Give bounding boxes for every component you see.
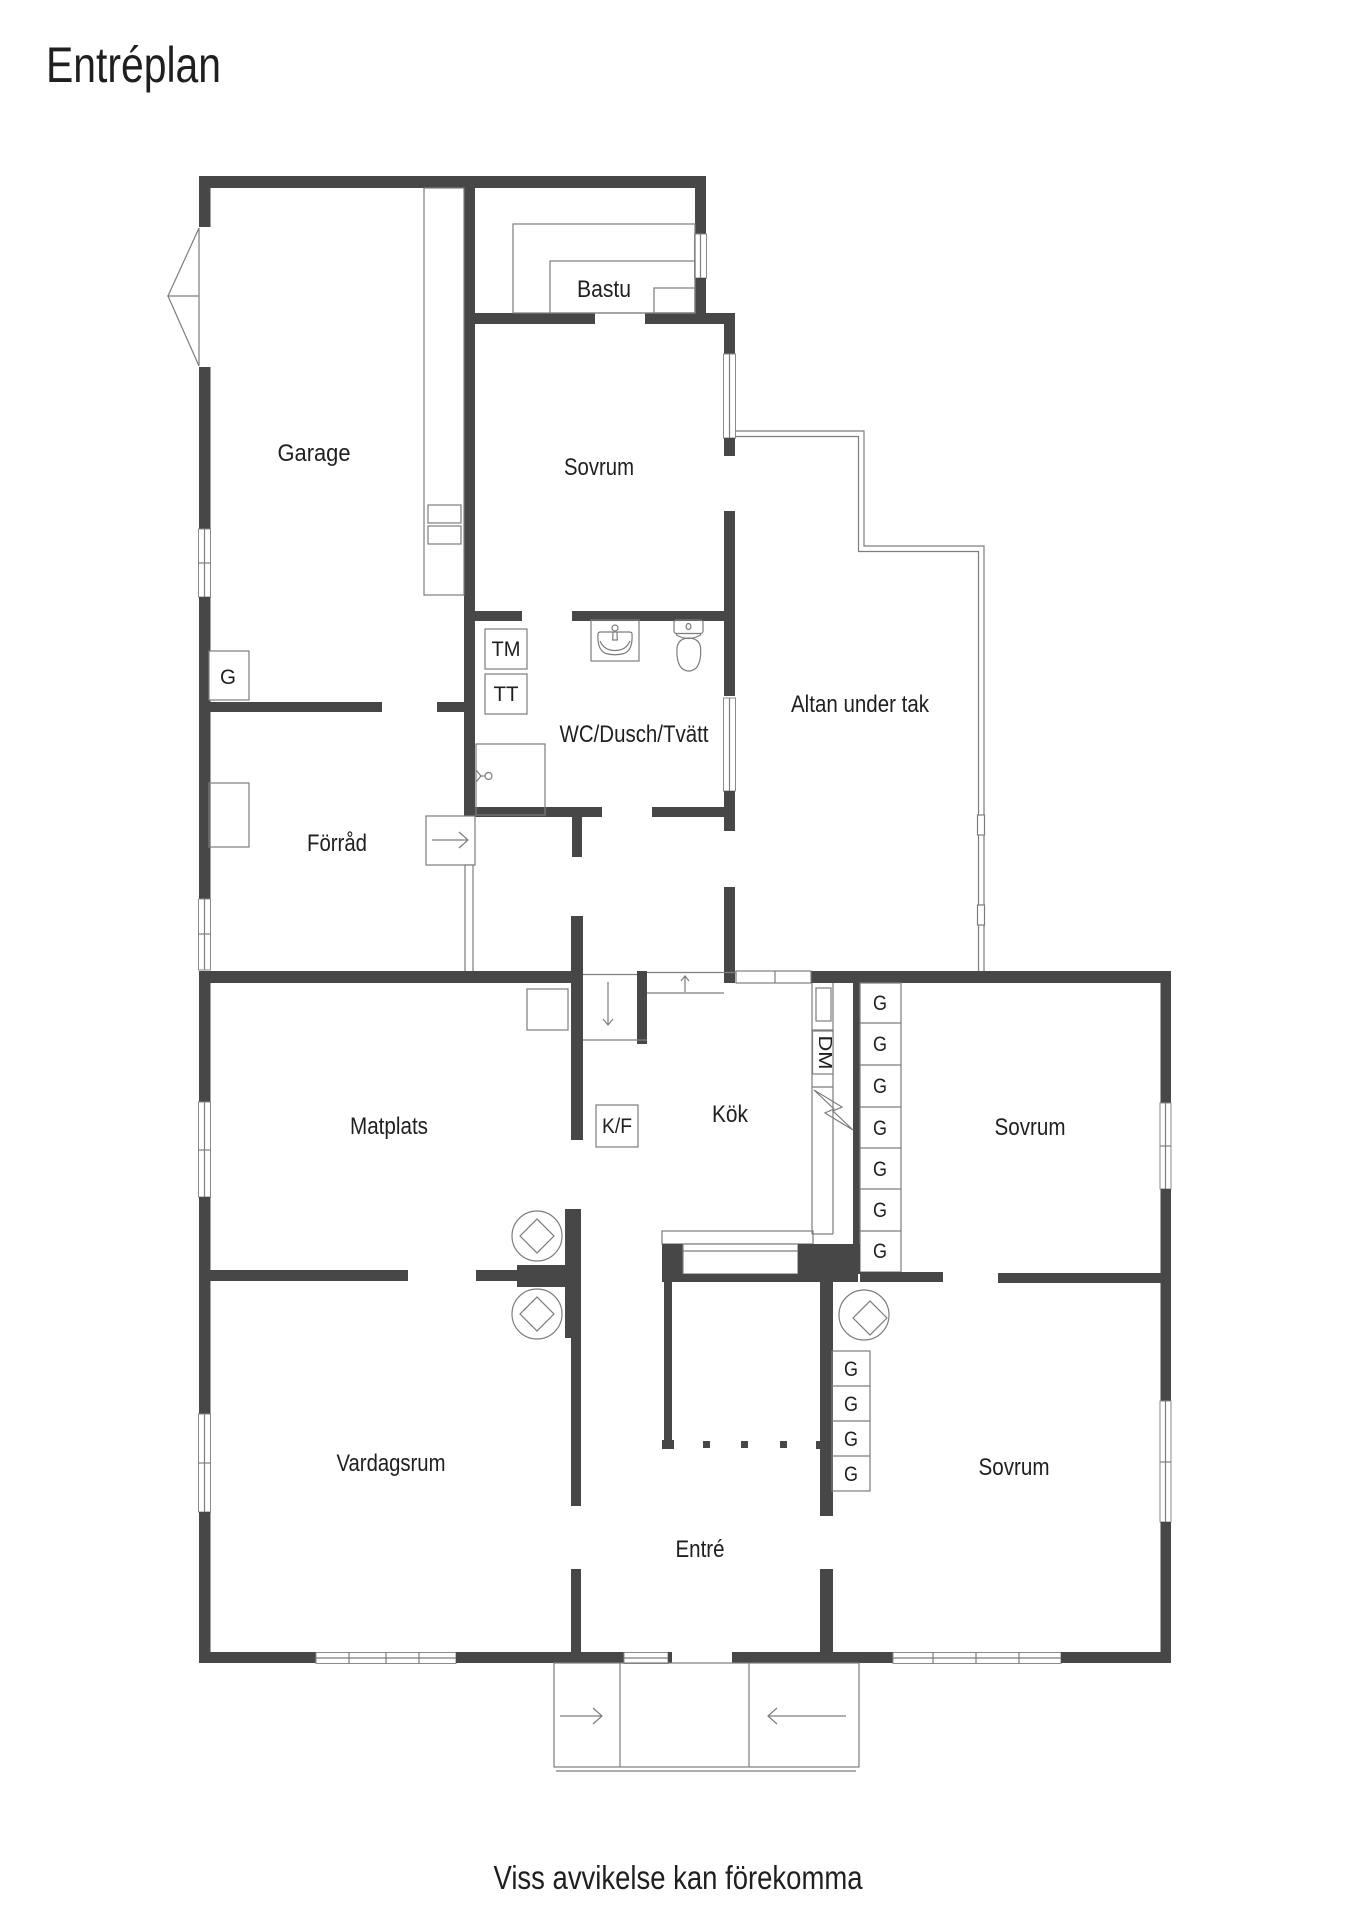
svg-text:WC/Dusch/Tvätt: WC/Dusch/Tvätt [560,721,709,748]
svg-text:TM: TM [492,638,521,661]
svg-text:Vardagsrum: Vardagsrum [337,1450,446,1477]
svg-text:G: G [220,666,236,689]
svg-text:G: G [873,992,887,1015]
svg-text:Sovrum: Sovrum [564,454,634,481]
svg-text:G: G [873,1117,887,1140]
svg-text:G: G [844,1393,858,1416]
svg-text:G: G [873,1075,887,1098]
svg-text:Garage: Garage [278,440,351,467]
svg-text:G: G [873,1033,887,1056]
svg-text:Entré: Entré [676,1536,725,1563]
svg-text:G: G [873,1158,887,1181]
svg-text:Förråd: Förråd [307,830,367,857]
svg-text:Entréplan: Entréplan [46,37,221,93]
svg-text:Viss avvikelse kan förekomma: Viss avvikelse kan förekomma [494,1859,864,1896]
svg-text:DM: DM [815,1036,835,1070]
svg-text:G: G [873,1199,887,1222]
svg-text:Bastu: Bastu [577,276,631,303]
svg-text:Sovrum: Sovrum [979,1454,1050,1481]
svg-text:Sovrum: Sovrum [995,1114,1066,1141]
svg-text:Kök: Kök [712,1101,749,1128]
svg-text:G: G [844,1358,858,1381]
svg-text:K/F: K/F [602,1115,632,1138]
svg-text:TT: TT [494,683,519,706]
svg-text:G: G [873,1240,887,1263]
svg-text:G: G [844,1428,858,1451]
svg-text:Matplats: Matplats [350,1113,428,1140]
svg-text:Altan under tak: Altan under tak [791,691,930,718]
svg-text:G: G [844,1463,858,1486]
